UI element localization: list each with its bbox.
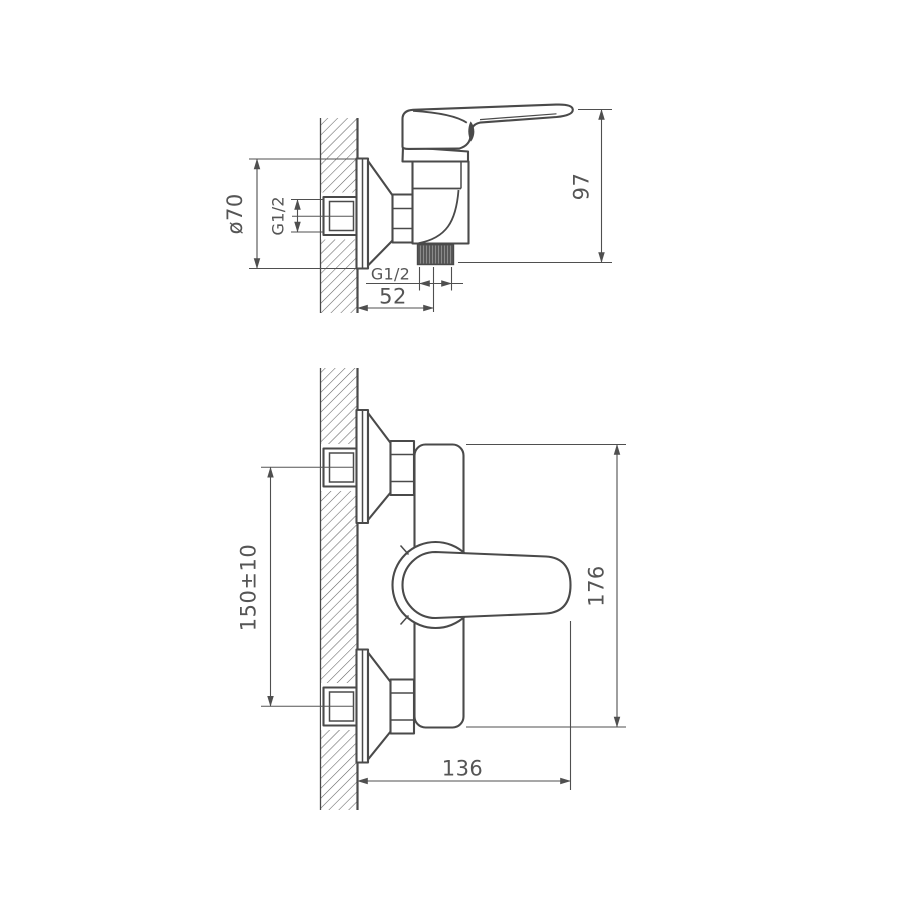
eccentric-cone	[368, 413, 391, 520]
dim-label-wall-to-handle: 136	[442, 757, 484, 781]
dim-label-diameter: ø70	[223, 193, 247, 234]
side-view: ø70 G1/2 97 G1/2 52	[223, 105, 612, 313]
lever-handle-front	[403, 552, 571, 618]
wall-pipe-socket	[292, 197, 358, 235]
dim-label-wall-thread: G1/2	[269, 196, 288, 235]
wall-hatch	[321, 368, 358, 810]
dim-label-overall-length: 176	[585, 565, 609, 607]
hex-nut	[391, 680, 415, 734]
eccentric-connector	[357, 159, 414, 269]
body-block	[413, 162, 469, 244]
mixer-body-front	[393, 445, 571, 728]
drawing-canvas: ø70 G1/2 97 G1/2 52	[0, 0, 900, 900]
mixer-body	[413, 162, 469, 265]
wall-section	[321, 368, 359, 810]
technical-drawing: ø70 G1/2 97 G1/2 52	[0, 0, 900, 900]
handle-outline	[403, 105, 573, 149]
hub-tick	[401, 546, 409, 555]
dim-label-outlet-thread: G1/2	[371, 265, 410, 284]
dim-label-height: 97	[570, 173, 594, 201]
eccentric-cone	[368, 161, 393, 266]
lever-handle-side	[403, 105, 573, 149]
dim-overall-height: 97	[458, 110, 612, 263]
front-view: 150±10 176 136	[237, 368, 627, 810]
hex-nut	[393, 195, 414, 243]
eccentric-connector-lower	[357, 650, 415, 763]
eccentric-cone	[368, 653, 391, 760]
dim-label-wall-to-outlet: 52	[379, 285, 407, 309]
hub-tick	[401, 616, 409, 625]
eccentric-connector-upper	[357, 410, 415, 523]
dim-label-inlet-centers: 150±10	[237, 544, 261, 631]
hex-nut	[391, 441, 415, 495]
